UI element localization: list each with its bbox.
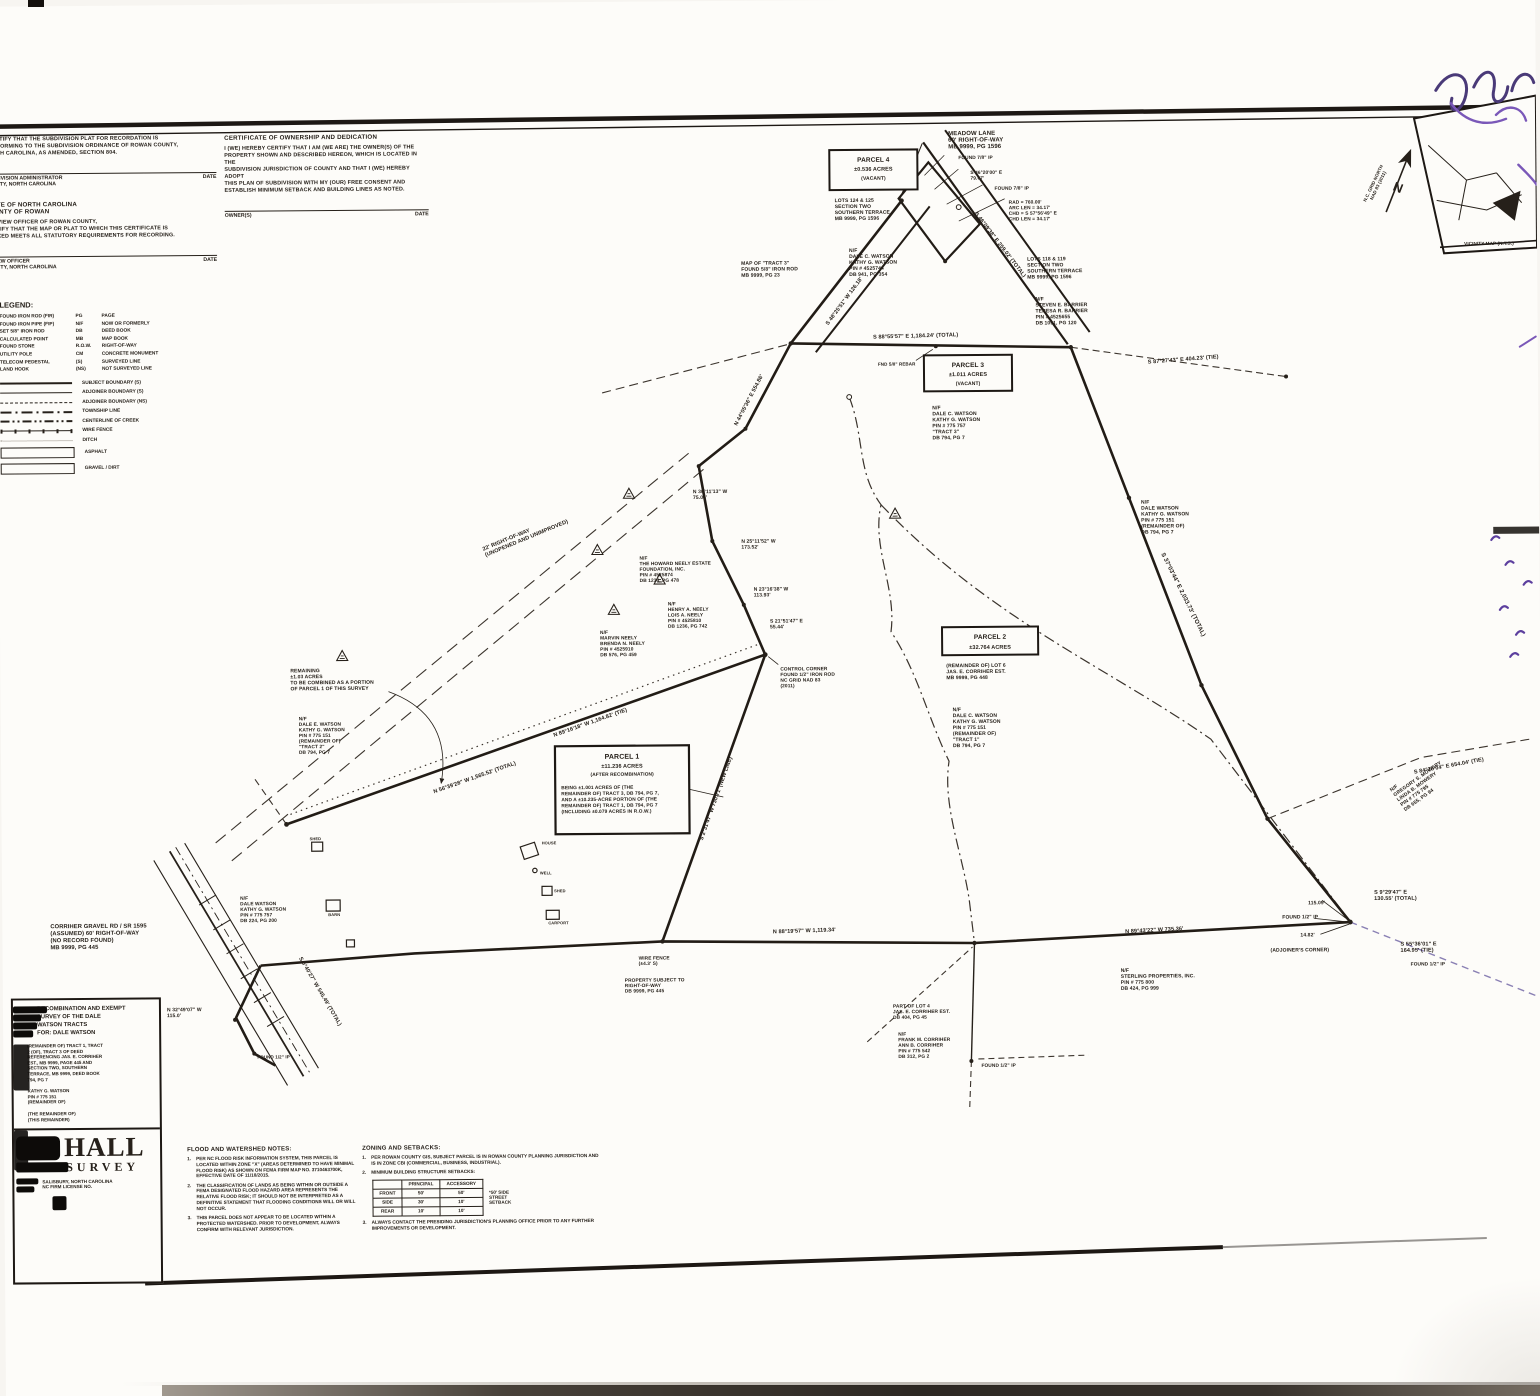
lots-terrace-label: LOTS 118 & 119SECTION TWOSOUTHERN TERRAC… <box>1027 256 1083 280</box>
setbacks-header-cell <box>373 1180 402 1189</box>
bearing-se-2: S 55°36'01" E164.95' (TIE) <box>1400 941 1436 953</box>
barn-label: BARN <box>328 912 340 917</box>
found-pipe-label-1: FOUND 7/8" IP <box>958 155 993 161</box>
firm-license-line: NC FIRM LICENSE NO. <box>16 1184 158 1190</box>
legend-row: FOUND STONER.O.W.RIGHT-OF-WAY <box>0 343 205 350</box>
parcel1-acres: ±11.236 ACRES <box>601 764 643 770</box>
legend-line-label: WIRE FENCE <box>82 428 112 433</box>
parcel-labels: PARCEL 4 ±0.536 ACRES (VACANT) LOTS 124 … <box>556 156 1012 816</box>
line-sample-solid-thick <box>0 382 72 385</box>
signature-caption: REVIEW OFFICER COUNTY, NORTH CAROLINA <box>0 258 57 271</box>
neely-estate-label: N/FTHE HOWARD NEELY ESTATEFOUNDATION, IN… <box>639 555 711 584</box>
house-label: HOUSE <box>542 840 557 845</box>
legend-abbr: DB <box>76 329 102 334</box>
watson-west-owner-label: N/FDALE WATSONKATHY G. WATSONPIN # 775 7… <box>240 895 287 924</box>
legend-abbr: PG <box>76 314 102 319</box>
legend-line-row: DITCH <box>0 437 205 444</box>
scan-artifact-top <box>28 0 44 7</box>
certificate-ownership-body: I (WE) HEREBY CERTIFY THAT I AM (WE ARE)… <box>224 144 428 195</box>
area-sample-gravel <box>1 463 75 475</box>
signature-line-ownership: OWNER(S) DATE <box>225 209 429 219</box>
dim-115: 115.09' <box>1308 900 1325 906</box>
legend-row: FOUND IRON PIPE (FIP)N/FNOW OR FORMERLY <box>0 321 205 328</box>
lot4-label: PART OF LOT 4JAS. E. CORRIHER EST.DB 404… <box>893 1003 950 1021</box>
area-sample-asphalt <box>1 447 75 459</box>
signature-caption: OWNER(S) <box>225 213 252 219</box>
setbacks-value: 10' <box>440 1206 483 1215</box>
legend-symbol-label: FOUND IRON PIPE (FIP) <box>0 322 76 328</box>
corriher-road-corridor <box>154 842 319 1086</box>
certificate-ownership: CERTIFICATE OF OWNERSHIP AND DEDICATION … <box>224 133 429 219</box>
bearing-nw-tie: N 89°16'18" W 1,164.82' (TIE) <box>553 707 628 739</box>
legend-row: UTILITY POLECMCONCRETE MONUMENT <box>0 351 205 358</box>
parcel4-name: PARCEL 4 <box>857 157 890 164</box>
state-heading: STATE OF NORTH CAROLINA COUNTY OF ROWAN <box>0 200 217 216</box>
legend-line-label: CENTERLINE OF CREEK <box>82 418 139 423</box>
parcel4-acres: ±0.536 ACRES <box>854 167 893 173</box>
signature-caption: SUBDIVISION ADMINISTRATOR COUNTY, NORTH … <box>0 175 63 188</box>
corner-markers <box>227 195 1354 1069</box>
legend-line-row: WIRE FENCE <box>0 427 205 434</box>
note-number: 3. <box>188 1215 197 1232</box>
certificate-ownership-title: CERTIFICATE OF OWNERSHIP AND DEDICATION <box>224 133 428 142</box>
scan-edge-band <box>162 1385 1540 1396</box>
legend-meaning: CONCRETE MONUMENT <box>102 351 205 357</box>
signature-line-approval: SUBDIVISION ADMINISTRATOR COUNTY, NORTH … <box>0 172 217 188</box>
legend-abbr: MB <box>76 337 102 342</box>
parcel3-note: (VACANT) <box>956 381 981 387</box>
line-sample-fence <box>0 429 72 434</box>
setbacks-header-cell: ACCESSORY <box>440 1179 483 1188</box>
legend-line-row: CENTERLINE OF CREEK <box>0 418 205 425</box>
bearing-parcel1-east: S 2°31'47" W 730.71' (NEW LINE) <box>699 756 734 841</box>
parcel3-owner: N/FDALE C. WATSONKATHY G. WATSONPIN # 77… <box>932 405 980 441</box>
title-block: RECOMBINATION AND EXEMPT SURVEY OF THE D… <box>11 997 163 1284</box>
date-label: DATE <box>203 257 217 269</box>
legend-line-row: TOWNSHIP LINE <box>0 408 205 415</box>
legend-abbr: CM <box>76 352 102 357</box>
legend-area-row: ASPHALT <box>1 446 206 459</box>
date-label: DATE <box>415 211 429 217</box>
meadow-tie-bearing: S 46°20'00" E79.67' <box>970 170 1002 182</box>
bearing-west-4: S 21°51'47" E55.44' <box>770 618 804 630</box>
found-pipe-bottom: FOUND 1/2" IP <box>981 1063 1016 1069</box>
redaction-mark <box>13 1030 33 1037</box>
legend-meaning: MAP BOOK <box>102 336 205 342</box>
setbacks-row-rear: REAR 10' 10' <box>373 1206 483 1216</box>
line-sample-solid-thin <box>0 392 72 394</box>
legend-line-label: SUBJECT BOUNDARY (S) <box>82 380 141 385</box>
smudged-margin-label <box>1493 527 1539 534</box>
subject-boundary <box>230 197 1352 1066</box>
legend-line-label: TOWNSHIP LINE <box>82 409 120 414</box>
legend-symbol-label: UTILITY POLE <box>0 352 76 358</box>
legend-line-row: SUBJECT BOUNDARY (S) <box>0 380 205 387</box>
redaction-mark <box>16 1178 38 1184</box>
purple-margin-marks <box>1491 536 1532 657</box>
marvin-neely-label: N/FMARVIN NEELYBRENDA N. NEELYPIN # 4525… <box>600 630 646 659</box>
note-number: 3. <box>363 1220 372 1232</box>
sterling-owner-label: N/FSTERLING PROPERTIES, INC.PIN # 775 80… <box>1121 967 1196 992</box>
redaction-mark <box>13 1006 47 1013</box>
legend-symbol-label: CALCULATED POINT <box>0 337 76 343</box>
legend-symbol-label: FOUND STONE <box>0 344 76 350</box>
note-text: MINIMUM BUILDING STRUCTURE SETBACKS: <box>371 1169 475 1176</box>
watson-tract2-label: N/FDALE E. WATSONKATHY G. WATSONPIN # 77… <box>299 716 346 756</box>
redaction-mark <box>16 1162 68 1172</box>
parcel3-acres: ±1.011 ACRES <box>949 372 988 378</box>
flood-notes: FLOOD AND WATERSHED NOTES: 1.PER NC FLOO… <box>187 1146 358 1236</box>
scan-shade-corner <box>1390 1276 1540 1396</box>
legend-row: TELECOM PEDESTAL(S)SURVEYED LINE <box>0 359 205 366</box>
dashed-tie-lines <box>212 339 1537 1113</box>
legend-meaning: RIGHT-OF-WAY <box>102 343 205 349</box>
note-number: 1. <box>187 1156 196 1179</box>
legend: LEGEND: FOUND IRON ROD (FIR)PGPAGE FOUND… <box>0 299 206 479</box>
line-sample-dash-dot-dot <box>0 420 72 423</box>
sheet-border <box>0 107 1511 1285</box>
setbacks-value: 10' <box>402 1207 440 1216</box>
legend-line-label: ADJOINER BOUNDARY (S) <box>82 390 143 395</box>
map-labels: MEADOW LANE60' RIGHT-OF-WAYMB 9999, PG 1… <box>44 127 1487 1076</box>
dotted-old-line <box>289 644 761 815</box>
legend-abbr: (S) <box>76 359 102 364</box>
setbacks-value: 30' <box>402 1198 440 1207</box>
setbacks-row-label: FRONT <box>373 1189 402 1198</box>
well-label: WELL <box>540 870 552 875</box>
barrier-owner-label: N/FSTEVEN E. BARRIERTERESA R. BARRIERPIN… <box>1035 296 1088 326</box>
redaction-mark <box>13 1014 41 1021</box>
wire-fence-note: WIRE FENCE(±4.3' S) <box>639 955 671 967</box>
plat-sheet: PARCEL 4 ±0.536 ACRES (VACANT) LOTS 124 … <box>0 0 1540 1396</box>
note-text: THE CLASSIFICATION OF LANDS AS BEING WIT… <box>196 1182 357 1212</box>
buildings <box>312 840 560 947</box>
legend-row: SET 5/8" IRON RODDBDEED BOOK <box>0 328 205 335</box>
parcel2-owner: N/FDALE C. WATSONKATHY G. WATSONPIN # 77… <box>953 707 1002 749</box>
control-corner-label: CONTROL CORNERFOUND 1/2" IRON RODNC GRID… <box>780 666 835 689</box>
legend-meaning: NOW OR FORMERLY <box>102 321 205 327</box>
setbacks-value: 50' <box>440 1188 483 1197</box>
signature-line-review: REVIEW OFFICER COUNTY, NORTH CAROLINA DA… <box>0 255 217 271</box>
legend-title: LEGEND: <box>0 299 204 310</box>
flood-note: 1.PER NC FLOOD RISK INFORMATION SYSTEM, … <box>187 1155 357 1180</box>
dim-1482: 14.82' <box>1300 932 1314 938</box>
legend-line-row: ADJOINER BOUNDARY (NS) <box>0 399 205 406</box>
legend-meaning: DEED BOOK <box>102 328 205 334</box>
line-sample-ditch <box>0 440 72 442</box>
redaction-mark <box>13 1044 29 1090</box>
henry-neely-label: N/FHENRY A. NEELYLOIS A. NEELYPIN # 4525… <box>668 601 710 630</box>
parcel2-lot: (REMAINDER OF) LOT 6JAS. E. CORRIHER EST… <box>946 663 1006 681</box>
note-text: PER NC FLOOD RISK INFORMATION SYSTEM, TH… <box>196 1155 357 1179</box>
zoning-note: 3.ALWAYS CONTACT THE PRESIDING JURISDICT… <box>363 1218 603 1231</box>
note-text: THIS PARCEL DOES NOT APPEAR TO BE LOCATE… <box>197 1214 358 1233</box>
flood-note: 3.THIS PARCEL DOES NOT APPEAR TO BE LOCA… <box>188 1214 358 1233</box>
legend-line-label: ADJOINER BOUNDARY (NS) <box>82 399 147 405</box>
setbacks-area: PRINCIPAL ACCESSORY FRONT 50' 50' SIDE 3… <box>362 1175 602 1220</box>
setbacks-table: PRINCIPAL ACCESSORY FRONT 50' 50' SIDE 3… <box>372 1179 483 1217</box>
scanned-plat-page: PARCEL 4 ±0.536 ACRES (VACANT) LOTS 124 … <box>0 0 1540 1396</box>
remaining-acres-label: REMAINING±1.03 ACRESTO BE COMBINED AS A … <box>290 668 374 693</box>
north-caption: N.C. GRID NORTHNAD 83 (2011) <box>1362 164 1389 205</box>
bearing-west-3: N 23°16'38" W113.93' <box>754 586 789 598</box>
watson-mid-owner-label: N/FDALE WATSONKATHY G. WATSONPIN # 775 1… <box>1141 499 1189 535</box>
legend-abbr: N/F <box>76 321 102 326</box>
leader-lines <box>386 346 1350 942</box>
shed2-label: SHED <box>554 888 566 893</box>
certificate-review-body: I, REVIEW OFFICER OF ROWAN COUNTY, CERTI… <box>0 218 217 241</box>
bearing-nw-total: N 56°39'28" W 1,565.52' (TOTAL) <box>433 761 517 796</box>
legend-symbol-label: LAND HOOK <box>0 367 76 373</box>
setbacks-header-cell: PRINCIPAL <box>402 1180 440 1189</box>
title-paragraph: (REMAINDER OF) TRACT 1, TRACT 2 (OF), TR… <box>15 1042 155 1082</box>
parcel4-lots: LOTS 124 & 125SECTION TWOSOUTHERN TERRAC… <box>835 198 891 222</box>
date-label: DATE <box>203 174 217 186</box>
redaction-mark <box>52 1196 66 1210</box>
note-number: 1. <box>362 1155 371 1167</box>
meadow-lane-label: MEADOW LANE60' RIGHT-OF-WAYMB 9999, PG 1… <box>948 131 1003 151</box>
logo-redaction <box>16 1136 60 1160</box>
legend-line-row: ADJOINER BOUNDARY (S) <box>0 389 205 396</box>
found-pipe-hook: FOUND 1/2" IP <box>257 1054 289 1059</box>
map-tract-label: MAP OF "TRACT 3"FOUND 5/8" IRON RODMB 99… <box>741 260 798 278</box>
shed1-label: SHED <box>310 836 322 841</box>
zoning-notes: ZONING AND SETBACKS: 1.PER ROWAN COUNTY … <box>362 1144 603 1235</box>
bearing-tie-east: S 87°27'43" E 404.23' (TIE) <box>1148 354 1219 365</box>
found-pipe-label-2: FOUND 7/8" IP <box>995 186 1030 192</box>
parcel2-name: PARCEL 2 <box>974 634 1007 641</box>
bearing-west-1: N 30°11'13" W75.06' <box>693 489 728 501</box>
parcel4-owner: N/FDALE C. WATSONKATHY G. WATSONPIN # 45… <box>849 248 897 278</box>
vicinity-map: VICINITY MAP (N.T.S.) <box>1414 96 1537 254</box>
legend-row: FOUND IRON ROD (FIR)PGPAGE <box>0 313 205 320</box>
found-pipe-se-2: FOUND 1/2" IP <box>1411 961 1446 967</box>
vicinity-caption: VICINITY MAP (N.T.S.) <box>1464 241 1514 246</box>
setbacks-value: 50' <box>402 1189 440 1198</box>
legend-area-label: ASPHALT <box>85 450 107 455</box>
line-sample-dashed <box>0 402 72 404</box>
title-remainder-lines: (THE REMAINDER OF) (THIS REMAINDER) <box>16 1110 156 1122</box>
legend-area-row: GRAVEL / DIRT <box>1 462 206 475</box>
setbacks-row-label: REAR <box>373 1207 402 1216</box>
parcel2-acres: ±32.764 ACRES <box>969 645 1011 651</box>
legend-meaning: PAGE <box>102 313 205 319</box>
bearing-ne-tie: S 84°26'04" E 654.04' (TIE) <box>1413 757 1484 776</box>
row22-label: 22' RIGHT-OF-WAY(UNOPENED AND UNIMPROVED… <box>482 513 569 559</box>
legend-abbr: R.O.W. <box>76 344 102 349</box>
legend-symbol-label: FOUND IRON ROD (FIR) <box>0 314 76 320</box>
zoning-notes-title: ZONING AND SETBACKS: <box>362 1144 602 1152</box>
redaction-mark <box>16 1187 34 1193</box>
line-sample-dash-dot <box>0 411 72 414</box>
legend-line-label: DITCH <box>82 438 97 443</box>
bearing-north-line: S 88°55'57" E 1,184.24' (TOTAL) <box>873 332 958 340</box>
note-number: 2. <box>187 1183 196 1212</box>
setbacks-side-note: *50' SIDE STREET SETBACK <box>489 1190 511 1205</box>
parcel1-note: (AFTER RECOMBINATION) <box>590 772 654 778</box>
title-owner-lines: KATHY G. WATSON PIN # 775 151 (REMAINDER… <box>16 1088 156 1106</box>
curve-data-label: RAD = 760.00'ARC LEN = 34.17'CHD = S 57°… <box>1009 199 1058 222</box>
flood-notes-title: FLOOD AND WATERSHED NOTES: <box>187 1146 357 1153</box>
north-arrow: N N.C. GRID NORTHNAD 83 (2011) <box>1362 146 1418 212</box>
note-triangle-icons <box>335 486 901 660</box>
title-line-4: FOR: DALE WATSON <box>15 1028 155 1037</box>
property-subject-note: PROPERTY SUBJECT TORIGHT-OF-WAYDB 9999, … <box>625 977 685 994</box>
bearing-road-sw: S 48°25'51" W 126.18' <box>825 276 865 327</box>
parcel1-name: PARCEL 1 <box>605 754 640 761</box>
legend-meaning: NOT SURVEYED LINE <box>102 366 205 372</box>
adjoiner-corner-note: (ADJOINER'S CORNER) <box>1271 947 1330 953</box>
bearing-se-1: S 9°29'47" E130.55' (TOTAL) <box>1374 890 1417 903</box>
setbacks-value: 10' <box>440 1197 483 1206</box>
found-pipe-se: FOUND 1/2" IP <box>1282 914 1319 920</box>
note-text: ALWAYS CONTACT THE PRESIDING JURISDICTIO… <box>372 1218 603 1231</box>
carport-label: CARPORT <box>548 920 569 925</box>
bearing-road-total: S 6°40'27" W 545.49' (TOTAL) <box>297 956 342 1027</box>
parcel4-note: (VACANT) <box>861 176 886 182</box>
parcel3-name: PARCEL 3 <box>952 362 985 369</box>
creek-centerlines <box>849 393 1342 944</box>
legend-row: LAND HOOK(NS)NOT SURVEYED LINE <box>0 366 205 373</box>
zoning-note: 1.PER ROWAN COUNTY GIS, SUBJECT PARCEL I… <box>362 1153 602 1166</box>
bearing-road-tie: N 32°49'07" W115.0' <box>167 1007 202 1019</box>
legend-row: CALCULATED POINTMBMAP BOOK <box>0 336 205 343</box>
redaction-mark <box>13 1022 37 1029</box>
note-text: PER ROWAN COUNTY GIS, SUBJECT PARCEL IS … <box>371 1153 602 1166</box>
note-number: 2. <box>362 1170 371 1176</box>
certificate-approval: I CERTIFY THAT THE SUBDIVISION PLAT FOR … <box>0 135 217 271</box>
legend-symbol-label: TELECOM PEDESTAL <box>0 360 76 366</box>
corriher-road-label: CORRIHER GRAVEL RD / SR 1595(ASSUMED) 60… <box>50 924 147 952</box>
flood-note: 2.THE CLASSIFICATION OF LANDS AS BEING W… <box>187 1182 357 1212</box>
interior-line <box>970 943 975 1061</box>
legend-symbol-label: SET 5/8" IRON ROD <box>0 329 76 335</box>
bearing-west-2: N 25°11'52" W173.52' <box>741 539 776 551</box>
frank-corriher-label: N/FFRANK M. CORRIHERANN B. CORRIHERPIN #… <box>898 1031 951 1060</box>
bearing-bottom-west: N 88°19'57" W 1,119.34' <box>773 927 837 935</box>
found-rebar-label: FND 5/8" REBAR <box>878 361 916 366</box>
setbacks-row-label: SIDE <box>373 1198 402 1207</box>
legend-abbr: (NS) <box>76 367 102 372</box>
legend-area-label: GRAVEL / DIRT <box>85 465 120 470</box>
certificate-approval-body: I CERTIFY THAT THE SUBDIVISION PLAT FOR … <box>0 135 216 158</box>
legend-meaning: SURVEYED LINE <box>102 359 205 365</box>
